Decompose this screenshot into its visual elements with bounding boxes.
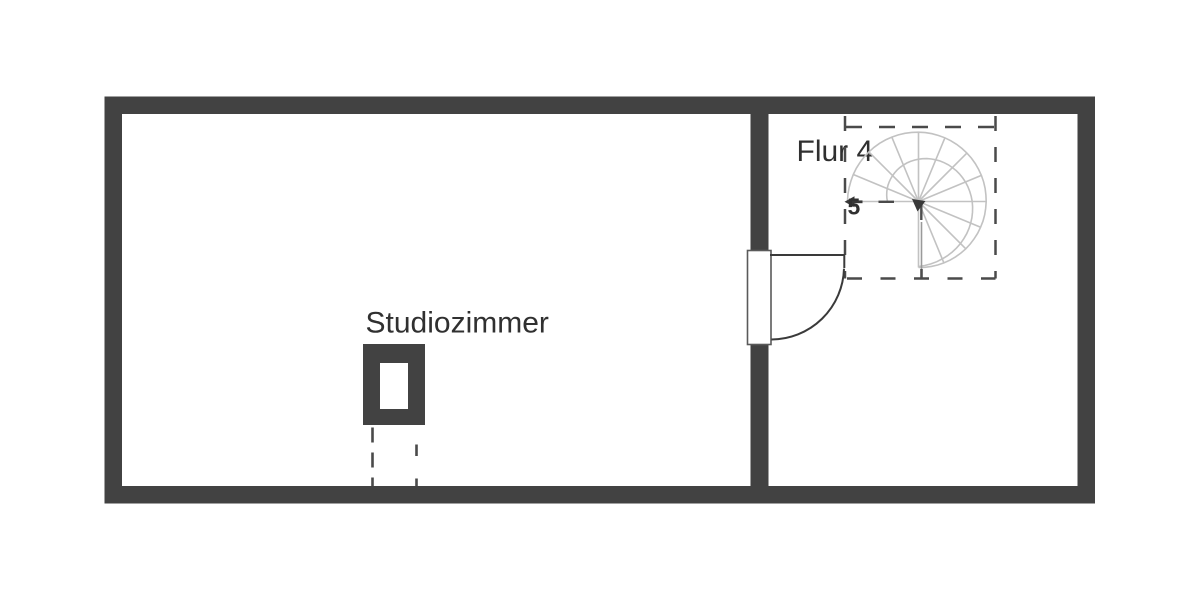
svg-text:5: 5 [848,194,861,220]
svg-text:Flur 4: Flur 4 [797,135,874,168]
svg-text:Studiozimmer: Studiozimmer [366,307,549,340]
